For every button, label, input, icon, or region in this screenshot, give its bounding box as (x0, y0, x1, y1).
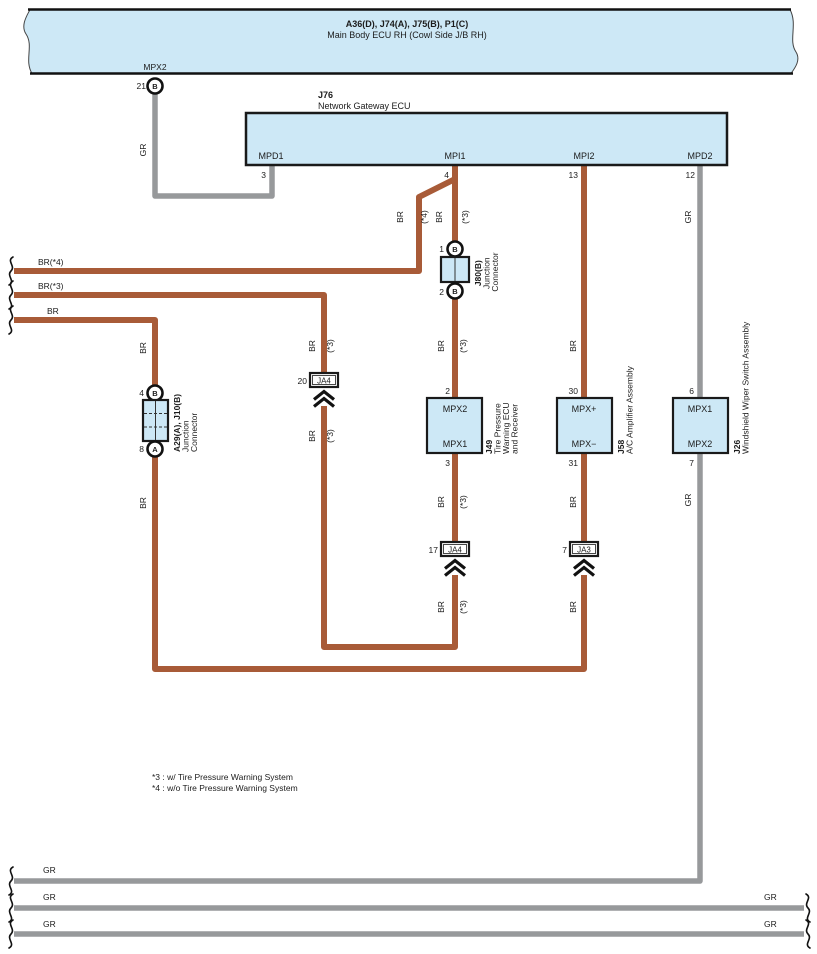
chevron-up-icon (445, 561, 465, 576)
break-icon (9, 867, 13, 895)
chevron-up-icon (314, 392, 334, 407)
j76-pin-mpi1: MPI1 (444, 151, 465, 161)
pin-number: 30 (569, 386, 579, 396)
wire-color-labels: GR BR (*4) BR (*3) GR BR (*3) BR BR (*3)… (138, 144, 693, 614)
banner-pin-label: MPX2 (143, 62, 166, 72)
pin-letter: B (452, 287, 458, 296)
j26-top-terminal: MPX1 (688, 404, 713, 414)
a29-vertical-label: A29(A), J10(B) Junction Connector (172, 392, 199, 452)
j49-top-terminal: MPX2 (443, 404, 468, 414)
wire-label-br: BR (568, 601, 578, 613)
wire-label-gr: GR (43, 919, 56, 929)
pin-letter: B (152, 82, 158, 91)
wire-label-br: BR (434, 211, 444, 223)
pin-number: 1 (439, 244, 444, 254)
j58-ac-amplifier: 30 MPX+ MPX− 31 J58 A/C Amplifier Assemb… (557, 365, 635, 468)
a29-j10-junction-connector: 4 B 8 A A29(A), J10(B) Junction Connecto… (139, 386, 199, 457)
break-icon (806, 920, 810, 948)
wire-label-br: BR (138, 497, 148, 509)
pin-number: 6 (689, 386, 694, 396)
break-icon (9, 894, 13, 922)
footnote-star3: *3 : w/ Tire Pressure Warning System (152, 772, 293, 782)
wire-label-br: BR (436, 496, 446, 508)
break-icon (9, 920, 13, 948)
j58-top-terminal: MPX+ (572, 404, 597, 414)
wire-label-br: BR (436, 601, 446, 613)
j76-pin-mpd1: MPD1 (258, 151, 283, 161)
banner-title: A36(D), J74(A), J75(B), P1(C) (346, 19, 469, 29)
relay-number: 7 (562, 545, 567, 555)
j76-pin-num-12: 12 (686, 170, 696, 180)
j76-pin-num-4: 4 (444, 170, 449, 180)
pin-number: 8 (139, 444, 144, 454)
pin-number: 21 (137, 81, 147, 91)
ja4-17-connector: 17 JA4 (429, 542, 469, 576)
wire-label-s3: (*3) (325, 339, 335, 353)
wire-label-gr: GR (683, 494, 693, 507)
wire-br-mpi1-branch-star4 (14, 179, 455, 271)
wire-label-s3: (*3) (458, 495, 468, 509)
main-body-ecu-banner: A36(D), J74(A), J75(B), P1(C) Main Body … (24, 10, 798, 74)
pin-number: 3 (445, 458, 450, 468)
j76-network-gateway-ecu: J76 Network Gateway ECU MPD1 MPI1 MPI2 M… (246, 90, 727, 180)
wire-label-br: BR (568, 496, 578, 508)
wire-label-br: BR (307, 430, 317, 442)
pin-number: 4 (139, 388, 144, 398)
pin-number: 2 (439, 287, 444, 297)
j49-vertical-label: J49 Tire Pressure Warning ECU and Receiv… (484, 400, 520, 454)
relay-label: JA4 (448, 546, 462, 555)
pin-letter: B (452, 245, 458, 254)
pin-number: 31 (569, 458, 579, 468)
relay-label: JA4 (317, 377, 331, 386)
j80-junction-connector: 1 B 2 B J80(B) Junction Connector (439, 242, 500, 299)
j76-name: Network Gateway ECU (318, 101, 411, 111)
j26-bottom-terminal: MPX2 (688, 439, 713, 449)
break-icon (806, 894, 810, 922)
wire-label-br4: BR(*4) (38, 257, 64, 267)
j26-wiper-switch: 6 MPX1 MPX2 7 J26 Windshield Wiper Switc… (673, 321, 751, 468)
pin-number: 7 (689, 458, 694, 468)
j76-id: J76 (318, 90, 333, 100)
pin-letter: A (152, 445, 158, 454)
wire-label-br: BR (568, 340, 578, 352)
footnotes: *3 : w/ Tire Pressure Warning System *4 … (152, 772, 298, 793)
ja3-7-connector: 7 JA3 (562, 542, 598, 576)
j49-tire-pressure-ecu: 2 MPX2 MPX1 3 J49 Tire Pressure Warning … (427, 386, 520, 468)
j76-box (246, 113, 727, 165)
j76-pin-num-3: 3 (261, 170, 266, 180)
j76-pin-num-13: 13 (569, 170, 579, 180)
break-icon (9, 306, 13, 334)
j80-vertical-label: J80(B) Junction Connector (473, 252, 500, 291)
wire-label-br: BR (138, 342, 148, 354)
j49-bottom-terminal: MPX1 (443, 439, 468, 449)
relay-number: 17 (429, 545, 439, 555)
wire-label-br: BR (47, 306, 59, 316)
wire-label-s3: (*3) (460, 210, 470, 224)
wire-label-gr: GR (764, 919, 777, 929)
wire-label-br3: BR(*3) (38, 281, 64, 291)
ja4-20-connector: 20 JA4 (298, 373, 338, 407)
wire-break-marks (9, 257, 810, 948)
wire-label-gr: GR (138, 144, 148, 157)
wire-label-br: BR (436, 340, 446, 352)
wire-br-left-to-a29 (14, 320, 155, 386)
wire-label-br: BR (395, 211, 405, 223)
banner-pin-21: 21 B (137, 79, 163, 94)
pin-number: 2 (445, 386, 450, 396)
j76-pin-mpd2: MPD2 (687, 151, 712, 161)
wire-label-s3: (*3) (325, 429, 335, 443)
relay-label: JA3 (577, 546, 591, 555)
banner-subtitle: Main Body ECU RH (Cowl Side J/B RH) (327, 30, 487, 40)
wire-label-s4: (*4) (419, 210, 429, 224)
j76-pin-mpi2: MPI2 (573, 151, 594, 161)
left-stub-labels: BR(*4) BR(*3) BR (38, 257, 64, 316)
relay-number: 20 (298, 376, 308, 386)
wiring-diagram: A36(D), J74(A), J75(B), P1(C) Main Body … (0, 0, 817, 954)
bottom-stub-labels: GR GR GR GR GR (43, 865, 777, 929)
wire-label-s3: (*3) (458, 600, 468, 614)
wire-br-star3-to-ja4-20 (14, 295, 324, 373)
wire-label-gr: GR (43, 865, 56, 875)
j58-bottom-terminal: MPX− (572, 439, 597, 449)
pin-letter: B (152, 389, 158, 398)
wire-br-a29-to-ja3-loop (155, 456, 584, 669)
wire-label-gr: GR (43, 892, 56, 902)
wire-label-br: BR (307, 340, 317, 352)
j26-vertical-label: J26 Windshield Wiper Switch Assembly (732, 321, 751, 454)
wire-label-gr: GR (764, 892, 777, 902)
wire-label-gr: GR (683, 211, 693, 224)
wiring-diagram-page: A36(D), J74(A), J75(B), P1(C) Main Body … (0, 0, 817, 954)
chevron-up-icon (574, 561, 594, 576)
j58-vertical-label: J58 A/C Amplifier Assembly (616, 365, 635, 454)
wire-label-s3: (*3) (458, 339, 468, 353)
footnote-star4: *4 : w/o Tire Pressure Warning System (152, 783, 298, 793)
